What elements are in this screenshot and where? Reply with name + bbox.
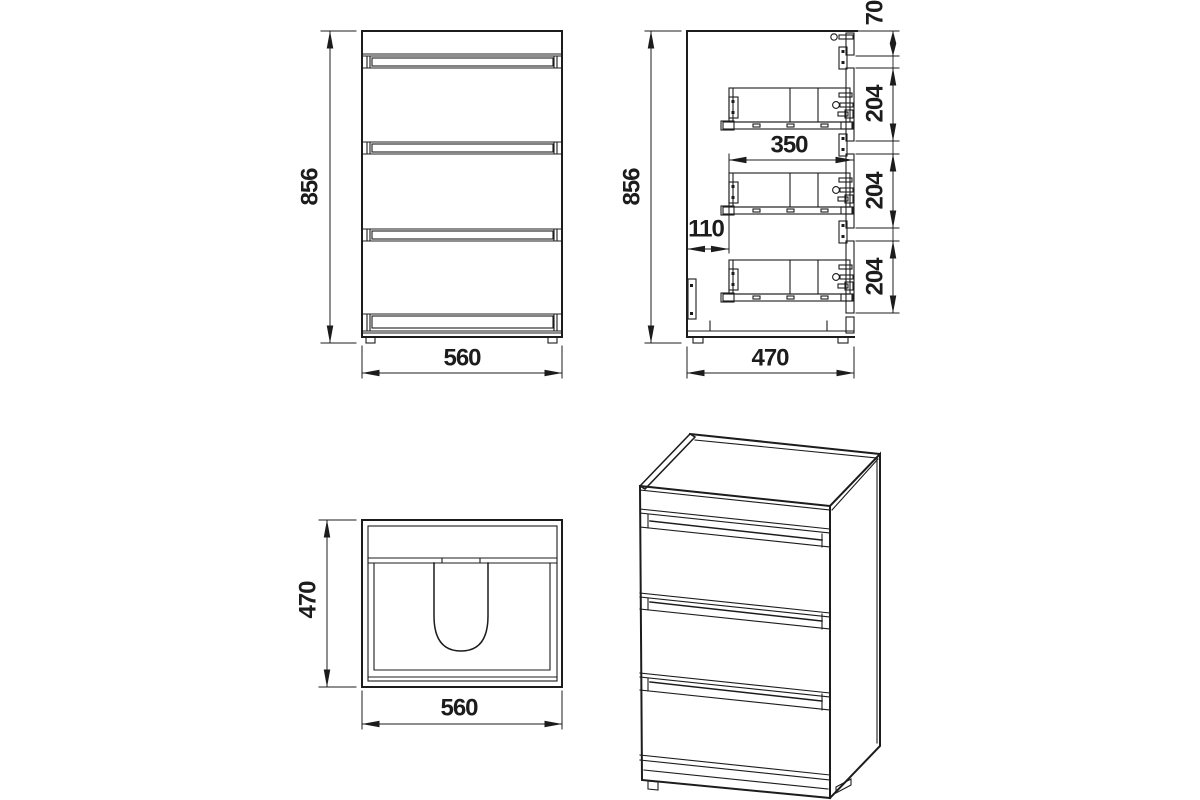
drawer-pitch-label-3: 204 (861, 257, 888, 296)
side-depth-label: 470 (751, 344, 789, 371)
topview-depth-label: 470 (294, 581, 321, 619)
top-panel-height-label: 70 (861, 0, 888, 25)
drawer-pitch-label-2: 204 (861, 171, 888, 210)
technical-drawing-svg: 856 560 856 470 70 204 204 204 350 110 4… (0, 0, 1200, 800)
front-width-label: 560 (443, 344, 481, 371)
side-height-label: 856 (618, 168, 645, 206)
front-height-label: 856 (296, 168, 323, 206)
back-clearance-label: 110 (688, 215, 724, 242)
slide-length-label: 350 (770, 131, 808, 158)
sheet-background (0, 0, 1200, 800)
drawer-pitch-label-1: 204 (861, 84, 888, 123)
drawing-sheet: 856 560 856 470 70 204 204 204 350 110 4… (0, 0, 1200, 800)
topview-width-label: 560 (440, 694, 478, 721)
